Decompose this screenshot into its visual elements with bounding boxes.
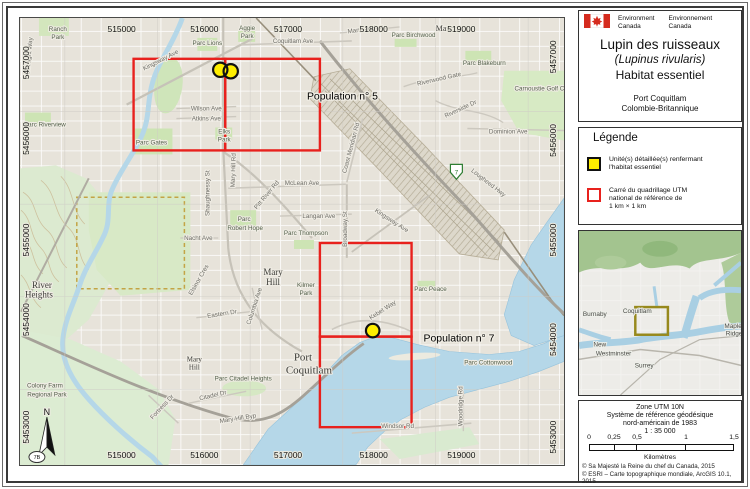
canada-flag-icon [584,14,610,28]
axis-label-top: 517000 [274,24,303,34]
place-label: Heights [25,290,53,300]
street-label: Broadway St [342,211,349,247]
population-label: Population n° 7 [424,334,495,345]
org-name-french: EnvironnementCanada [669,15,713,30]
street-label: McLean Ave [285,180,320,187]
habitat-unit-swatch [587,157,601,171]
axis-label-right: 5456000 [548,124,558,157]
axis-label-bottom: 516000 [190,450,219,460]
scale-ratio: 1 : 35 000 [579,428,741,435]
park-label: Parc Gates [136,139,167,146]
park-label: Robert Hope [227,225,263,232]
street-label: Atkins Ave [192,116,222,123]
axis-label-top: 519000 [447,24,476,34]
location-province: Colombie-Britannique [579,104,741,113]
scale-bar-segment [615,445,638,450]
park-label: Colony Farm [27,382,63,389]
scale-bar [589,444,734,451]
main-map[interactable]: N 7B7 Kingsway AveManning AveCoquitlam A… [19,17,565,466]
park-label: Elks [218,128,230,135]
street-label: Langan Ave [302,213,336,220]
org-name-english: EnvironmentCanada [618,15,655,30]
axis-label-right: 5457000 [548,40,558,73]
datum-line2: nord-américain de 1983 [579,420,741,427]
location-city: Port Coquitlam [579,94,741,103]
park-label: Parc [238,216,251,223]
park-label: Parc Cottonwood [464,359,513,366]
axis-label-right: 5454000 [548,323,558,356]
axis-label-bottom: 515000 [108,450,137,460]
park-label: Regional Park [27,391,67,398]
scale-tick-label: 1 [684,434,688,441]
park-label: Parc Blakeburn [463,60,506,67]
axis-label-top: 518000 [360,24,389,34]
inset-city-label: Maple [724,323,741,330]
street-label: Shaughnessy St [204,170,211,216]
park-label: Aggie [239,25,256,32]
axis-label-bottom: 518000 [360,450,389,460]
place-label: Mary [263,267,283,277]
place-label: Hill [266,277,280,287]
inset-city-label: Burnaby [583,311,608,318]
park-label: Parc Citadel Heights [215,375,272,382]
population-label: Population n° 5 [307,92,378,103]
axis-label-bottom: 517000 [274,450,303,460]
park-label: Park [300,290,314,297]
overview-inset-map: BurnabyCoquitlamNewWestminsterSurreyMapl… [578,230,742,396]
map-title: Lupin des ruisseaux [579,37,741,52]
street-label: Nacht Ave [184,235,213,242]
inset-city-label: Ridge [726,331,741,338]
scale-tick-label: 0,25 [607,434,620,441]
species-latin-name: (Lupinus rivularis) [579,54,741,66]
place-label: Coquitlam [286,364,333,376]
inset-city-label: New [593,342,606,349]
park-label: Parc Peace [414,286,447,293]
scale-tick-label: 0,5 [632,434,641,441]
main-map-canvas: N 7B7 Kingsway AveManning AveCoquitlam A… [20,18,564,465]
place-label: Hill [189,363,200,371]
habitat-map-document: N 7B7 Kingsway AveManning AveCoquitlam A… [0,0,750,489]
street-label: Dominion Ave [489,128,528,135]
title-box: EnvironmentCanada EnvironnementCanada Lu… [578,10,742,122]
highway-shield-label: 7B [34,455,41,461]
scale-unit: Kilomètres [579,454,741,461]
place-label: River [32,280,52,290]
street-label: Woodridge Rd [457,386,464,426]
inset-city-label: Coquitlam [623,308,652,315]
scale-bar-segment [686,445,733,450]
north-arrow-label: N [44,407,50,417]
park-label: Park [218,136,232,143]
inset-map-canvas: BurnabyCoquitlamNewWestminsterSurreyMapl… [579,231,741,395]
scale-tick-label: 0 [587,434,591,441]
legend-item-habitat: Unité(s) détaillée(s) renfermantl'habita… [609,156,703,172]
street-label: Coquitlam Ave [273,38,314,45]
place-label: Mary [187,355,203,363]
place-label: Port [294,351,312,363]
park-label: Kilmer [297,282,315,289]
park-label: Ranch [49,26,68,33]
utm-grid-swatch [587,188,601,202]
scale-bar-segment [637,445,685,450]
street-label: Wilson Ave [191,106,222,113]
government-header: EnvironmentCanada EnvironnementCanada [584,14,739,30]
axis-label-top: 516000 [190,24,219,34]
map-info: Zone UTM 10N Système de référence géodés… [578,400,742,482]
park-label: Park [51,34,65,41]
axis-label-left: 5454000 [21,303,31,336]
map-subtitle: Habitat essentiel [579,68,741,82]
inset-city-label: Surrey [635,362,655,369]
park-label: Park [241,33,255,40]
scale-bar-segment [590,445,615,450]
scale-tick-label: 1,5 [729,434,738,441]
axis-label-right: 5455000 [548,223,558,256]
legend-title: Légende [593,132,638,144]
park-label: Parc Thompson [284,230,329,237]
street-label: Windsor Rd [381,423,414,430]
copyright-credits: © Sa Majesté la Reine du chef du Canada,… [582,463,739,486]
legend: Légende Unité(s) détaillée(s) renfermant… [578,127,742,225]
park-label: Parc Birchwood [392,32,436,39]
legend-item-utm-grid: Carré du quadrillage UTMnational de réfé… [609,187,687,211]
datum-line1: Système de référence géodésique [579,412,741,419]
axis-label-left: 5455000 [21,223,31,256]
utm-zone: Zone UTM 10N [579,404,741,411]
axis-label-bottom: 519000 [447,450,476,460]
axis-label-left: 5453000 [21,410,31,443]
park-label: Carnoustie Golf Cl [514,86,564,93]
street-label: Mary Hill Rd [230,153,238,188]
axis-label-top: 515000 [108,24,137,34]
inset-city-label: Westminster [596,350,632,357]
axis-label-left: 5456000 [21,122,31,155]
axis-label-right: 5453000 [548,420,558,453]
axis-label-left: 5457000 [21,46,31,79]
park-label: Parc Lions [193,40,223,47]
highway-shield-label: 7 [455,169,459,176]
